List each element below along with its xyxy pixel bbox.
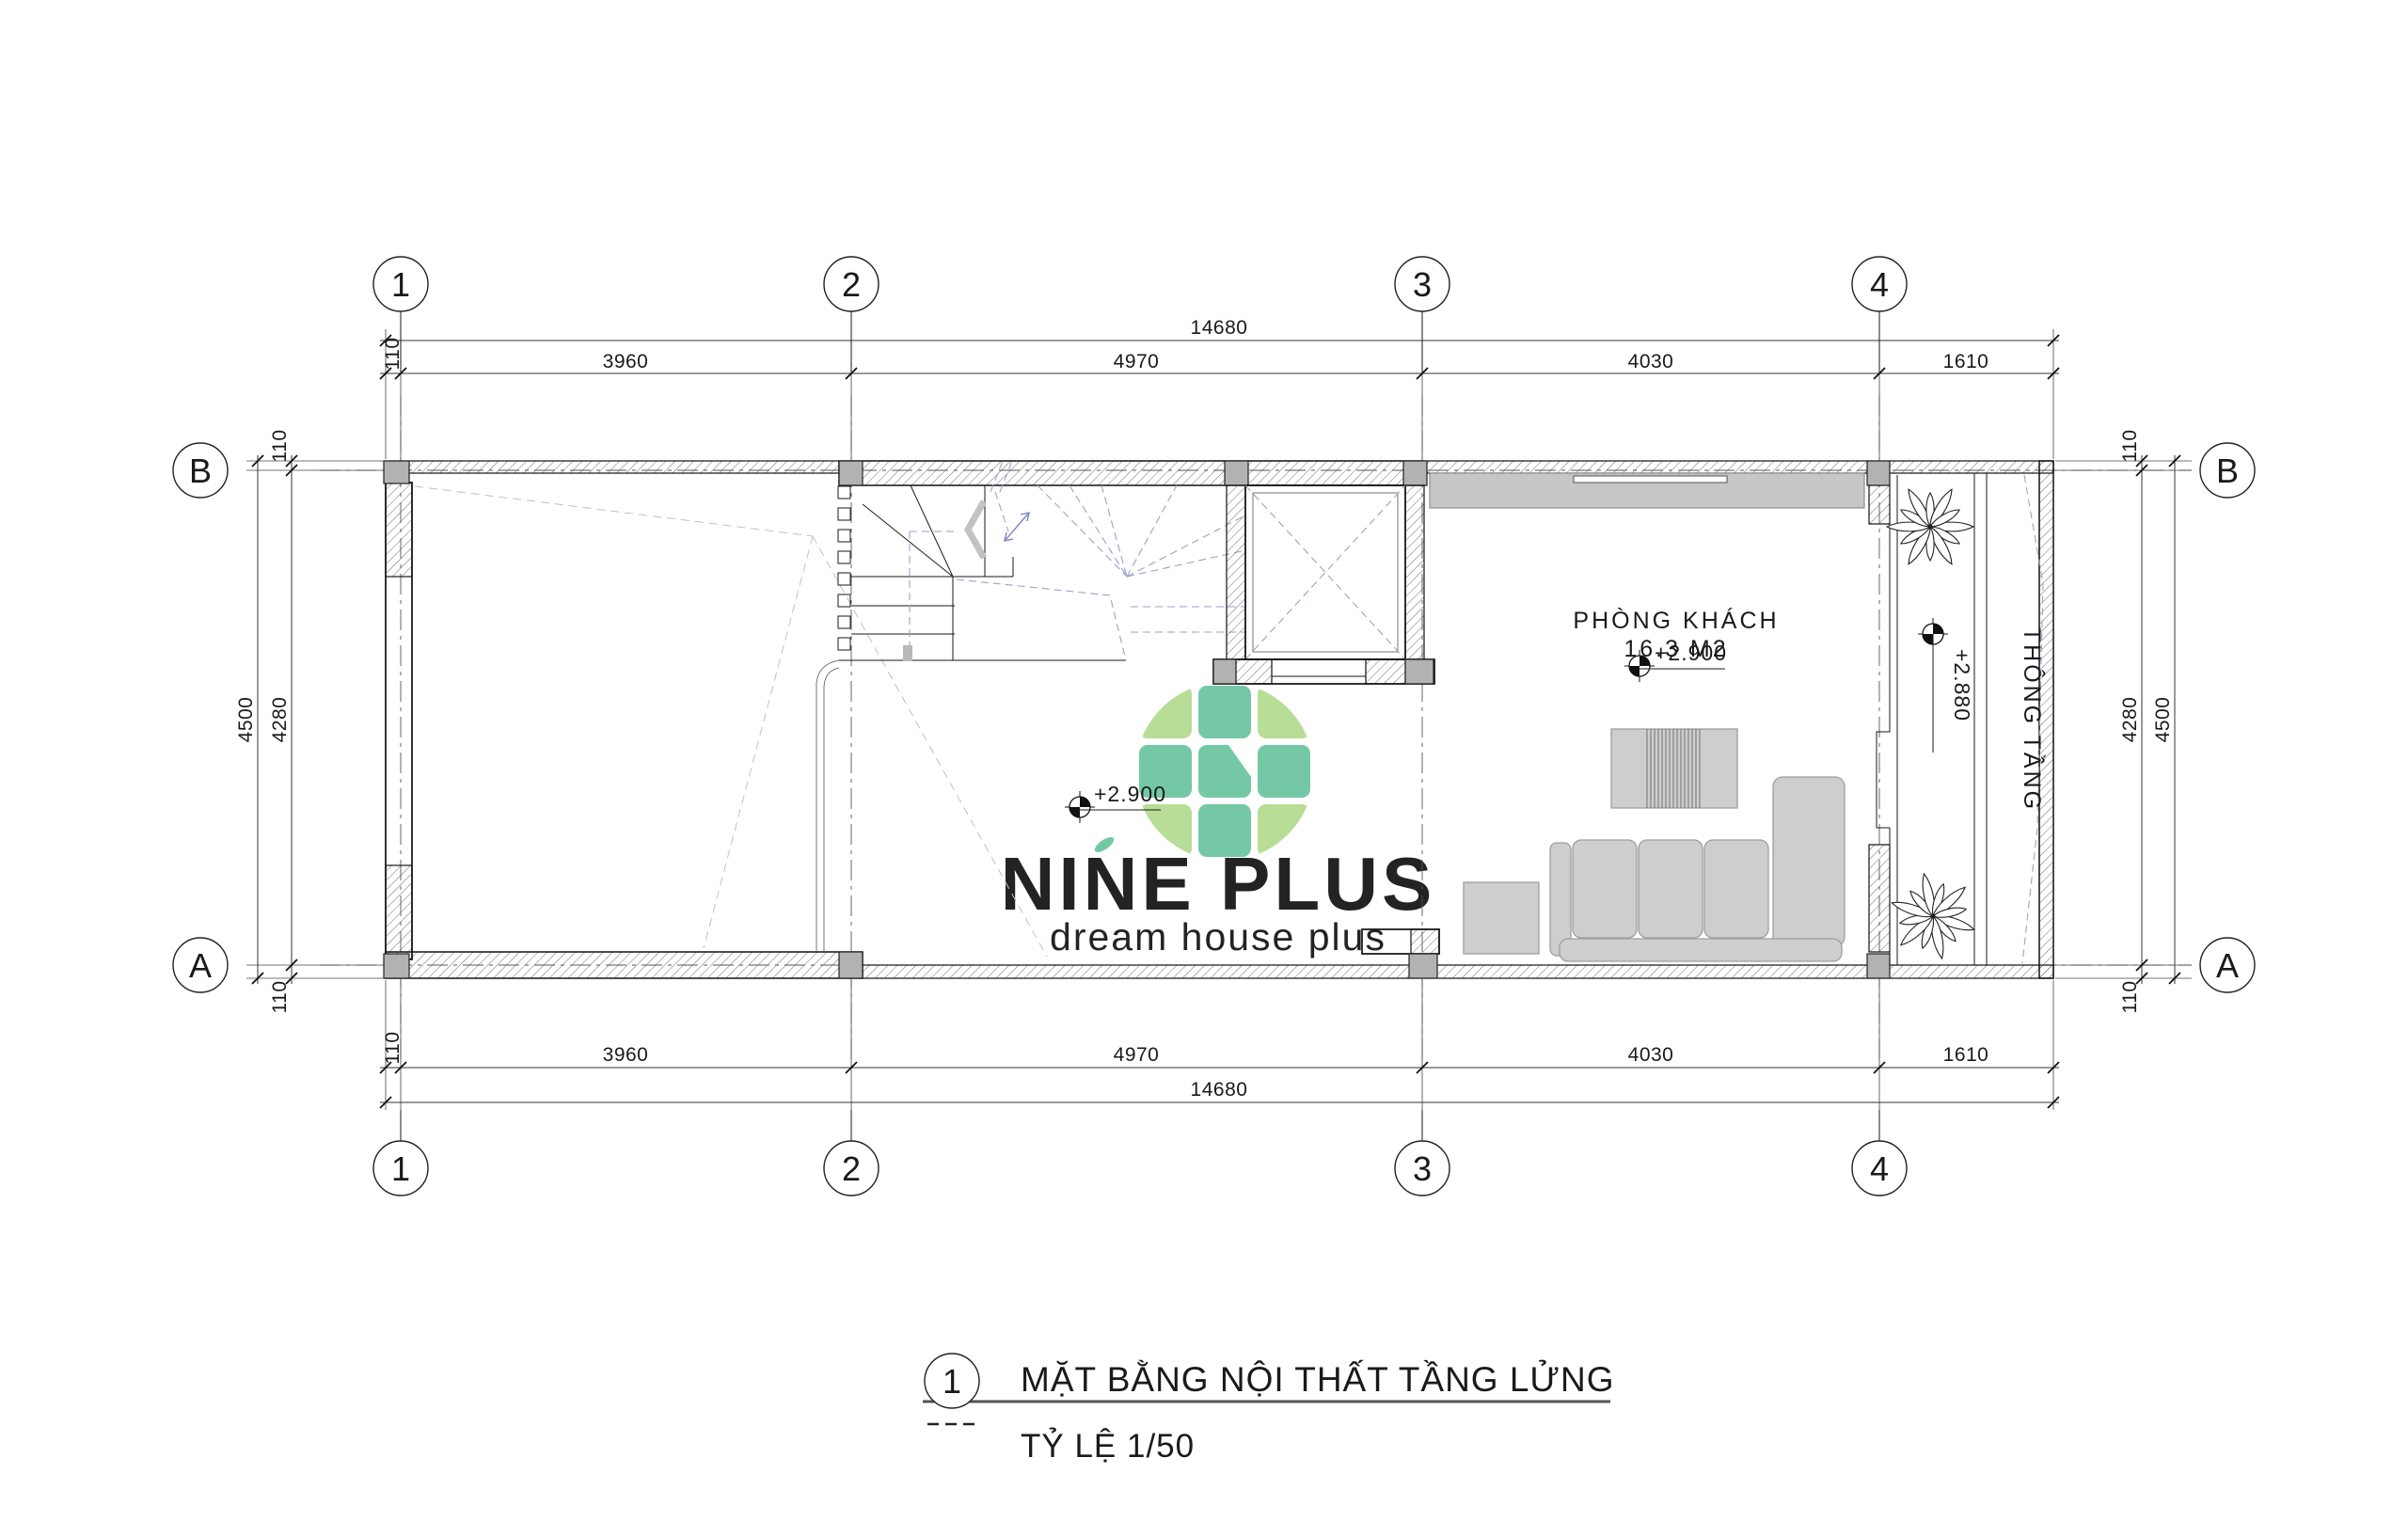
grid-bubble-2-bottom-label: 2 — [842, 1149, 861, 1188]
dim-v-110-left-bottom: 110 — [269, 981, 291, 1014]
shaft-wall-right — [1405, 485, 1424, 659]
grid-bubble-B-left-label: B — [189, 452, 212, 490]
grid-bubble-A-right-label: A — [2216, 946, 2239, 985]
dim-seg-4030-bottom: 4030 — [1628, 1044, 1674, 1066]
living-room-name: PHÒNG KHÁCH — [1573, 607, 1779, 634]
grid-bubble-3-top-label: 3 — [1413, 265, 1432, 304]
side-table — [1464, 882, 1539, 954]
tv-console — [1611, 729, 1737, 808]
stair-post — [903, 645, 912, 661]
logo-globe-icon — [1139, 686, 1310, 857]
wall-niche-grid3-hatch — [1411, 929, 1439, 954]
dim-seg-110-bottom: 110 — [382, 1032, 404, 1065]
column-shaft-bottom-left — [1213, 659, 1236, 684]
void-name: THÔNG TẦNG — [2019, 627, 2046, 812]
dim-overall-top: 14680 — [1191, 317, 1248, 339]
column-3B — [1403, 461, 1427, 485]
wall-top-left — [386, 461, 839, 473]
dim-seg-4030-top: 4030 — [1628, 351, 1674, 372]
grid-bubble-1-top-label: 1 — [391, 265, 410, 304]
detail-number: 1 — [943, 1362, 961, 1401]
dim-v-110-right-top: 110 — [2119, 430, 2141, 463]
logo-brand-text: NINE PLUS — [1001, 842, 1436, 926]
shaft-wall-left — [1227, 485, 1245, 659]
dim-v-overall-right: 4500 — [2152, 697, 2174, 743]
dim-seg-4970-bottom: 4970 — [1114, 1044, 1160, 1066]
column-4A — [1867, 954, 1890, 978]
drawing-sheet: NINE PLUS dream house plus — [0, 0, 2408, 1521]
grid-bubble-4-bottom-label: 4 — [1870, 1149, 1889, 1188]
grid-bubble-A-left-label: A — [189, 946, 212, 985]
grid-bubble-2-top-label: 2 — [842, 265, 861, 304]
drawing-title: MẶT BẰNG NỘI THẤT TẦNG LỬNG — [1021, 1359, 1615, 1399]
void-level-value: +2.880 — [1950, 649, 1974, 721]
dim-v-overall-left: 4500 — [235, 697, 257, 743]
column-shaft-top-left — [1225, 461, 1248, 485]
dim-seg-1610-top: 1610 — [1943, 351, 1989, 372]
wall-stub-grid4-top — [1869, 485, 1890, 524]
tv-screen-lines — [1647, 729, 1700, 808]
dim-seg-4970-top: 4970 — [1114, 351, 1160, 372]
column-1B — [384, 461, 409, 483]
dim-seg-1610-bottom: 1610 — [1943, 1044, 1989, 1066]
wall-left-lower-seg — [386, 865, 412, 959]
wall-stub-grid4-bottom — [1869, 845, 1890, 952]
dim-v-110-right-bottom: 110 — [2119, 981, 2141, 1014]
wall-bottom-left — [386, 952, 863, 978]
column-shaft-bottom-right — [1405, 659, 1434, 684]
grid-bubble-4-top-label: 4 — [1870, 265, 1889, 304]
wall-top-right — [1422, 461, 2053, 473]
cabinet-slot — [1574, 476, 1727, 483]
dim-seg-3960-top: 3960 — [603, 351, 649, 372]
dim-v-110-left-top: 110 — [269, 430, 291, 463]
sofa-seat-front — [1560, 939, 1842, 961]
logo-tagline-text: dream house plus — [1050, 915, 1386, 959]
column-2A — [839, 952, 863, 978]
dim-v-inner-left: 4280 — [269, 697, 291, 743]
living-room-level: +2.900 — [1655, 641, 1727, 665]
floorplan-drawing: NINE PLUS dream house plus — [0, 0, 2408, 1521]
wall-top-middle — [839, 461, 1422, 485]
column-4B — [1867, 461, 1890, 485]
hall-level-value: +2.900 — [1094, 782, 1166, 806]
column-3A — [1409, 954, 1437, 978]
dim-v-inner-right: 4280 — [2119, 697, 2141, 743]
grid-bubble-1-bottom-label: 1 — [391, 1149, 410, 1188]
drawing-scale: TỶ LỆ 1/50 — [1021, 1427, 1195, 1465]
dim-seg-3960-bottom: 3960 — [603, 1044, 649, 1066]
wall-left-upper-seg — [386, 483, 412, 577]
sofa-chaise — [1773, 777, 1845, 946]
grid-bubble-3-bottom-label: 3 — [1413, 1149, 1432, 1188]
dim-overall-bottom: 14680 — [1191, 1079, 1248, 1101]
column-1A — [384, 954, 409, 978]
column-2B — [839, 461, 863, 485]
grid-bubble-B-right-label: B — [2216, 452, 2239, 490]
